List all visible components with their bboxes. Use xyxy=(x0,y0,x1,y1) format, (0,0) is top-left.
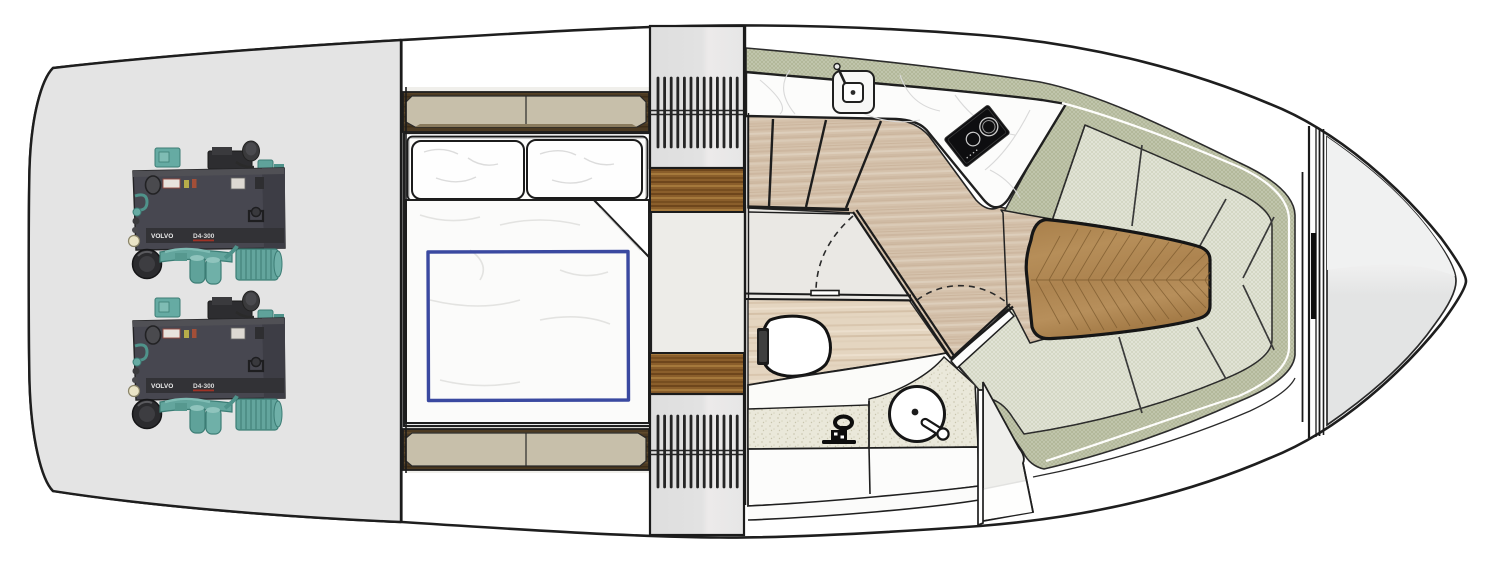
svg-text:VOLVO: VOLVO xyxy=(151,233,173,240)
svg-text:D4-300: D4-300 xyxy=(193,233,215,240)
